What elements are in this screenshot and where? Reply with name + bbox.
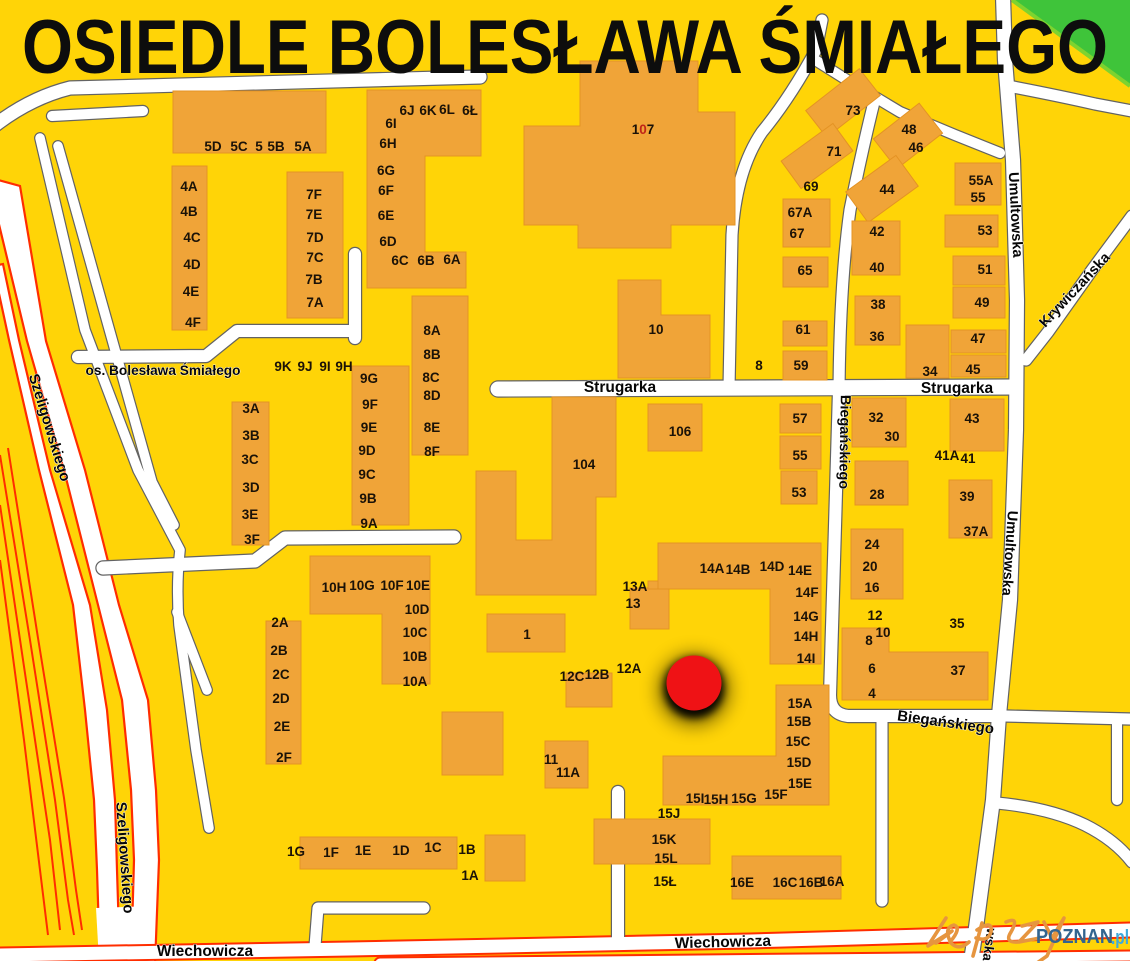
svg-text:16A: 16A — [820, 874, 845, 889]
svg-text:53: 53 — [977, 223, 993, 238]
svg-text:37A: 37A — [964, 524, 989, 539]
svg-text:48: 48 — [901, 122, 917, 137]
svg-text:34: 34 — [922, 364, 938, 379]
svg-text:4C: 4C — [183, 230, 201, 245]
svg-text:2A: 2A — [271, 615, 289, 630]
svg-text:8E: 8E — [424, 420, 441, 435]
svg-text:24: 24 — [864, 537, 880, 552]
svg-text:6J: 6J — [399, 103, 414, 118]
svg-text:5: 5 — [255, 139, 263, 154]
svg-text:55A: 55A — [969, 173, 994, 188]
svg-text:42: 42 — [869, 224, 884, 239]
svg-text:5C: 5C — [230, 139, 248, 154]
svg-text:15D: 15D — [787, 755, 812, 770]
svg-text:14A: 14A — [700, 561, 725, 576]
svg-text:36: 36 — [869, 329, 885, 344]
svg-text:os. Bolesława Śmiałego: os. Bolesława Śmiałego — [86, 363, 241, 378]
svg-text:15Ł: 15Ł — [653, 874, 676, 889]
svg-text:40: 40 — [869, 260, 884, 275]
svg-text:28: 28 — [869, 487, 885, 502]
svg-text:3B: 3B — [242, 428, 260, 443]
svg-text:14E: 14E — [788, 563, 812, 578]
svg-text:2B: 2B — [270, 643, 288, 658]
svg-text:47: 47 — [970, 331, 985, 346]
svg-text:43: 43 — [964, 411, 980, 426]
svg-text:6A: 6A — [443, 252, 461, 267]
svg-text:10: 10 — [648, 322, 663, 337]
svg-text:12C: 12C — [560, 669, 585, 684]
svg-text:45: 45 — [965, 362, 981, 377]
svg-text:10C: 10C — [403, 625, 428, 640]
svg-text:6Ł: 6Ł — [462, 103, 478, 118]
svg-text:9I: 9I — [319, 359, 330, 374]
svg-text:6D: 6D — [379, 234, 397, 249]
svg-text:Biegańskiego: Biegańskiego — [835, 395, 853, 490]
svg-text:55: 55 — [970, 190, 986, 205]
svg-text:106: 106 — [669, 424, 692, 439]
svg-text:14I: 14I — [797, 651, 816, 666]
svg-text:9C: 9C — [358, 467, 376, 482]
svg-text:15C: 15C — [786, 734, 811, 749]
svg-text:5B: 5B — [267, 139, 285, 154]
svg-text:6G: 6G — [377, 163, 395, 178]
svg-text:65: 65 — [797, 263, 813, 278]
svg-text:32: 32 — [868, 410, 883, 425]
svg-text:9K: 9K — [274, 359, 292, 374]
svg-text:9G: 9G — [360, 371, 378, 386]
svg-text:6C: 6C — [391, 253, 409, 268]
svg-text:15E: 15E — [788, 776, 812, 791]
svg-text:53: 53 — [791, 485, 807, 500]
svg-text:55: 55 — [792, 448, 808, 463]
svg-text:1B: 1B — [458, 842, 476, 857]
svg-text:1: 1 — [523, 627, 531, 642]
svg-text:9F: 9F — [362, 397, 378, 412]
svg-text:4E: 4E — [183, 284, 200, 299]
svg-text:16E: 16E — [730, 875, 754, 890]
svg-text:9E: 9E — [361, 420, 378, 435]
svg-text:12A: 12A — [617, 661, 642, 676]
svg-text:39: 39 — [959, 489, 974, 504]
svg-text:41A: 41A — [935, 448, 960, 463]
svg-text:16C: 16C — [773, 875, 798, 890]
svg-text:3A: 3A — [242, 401, 260, 416]
svg-text:38: 38 — [870, 297, 886, 312]
svg-text:7E: 7E — [306, 207, 323, 222]
svg-text:6K: 6K — [419, 103, 437, 118]
svg-text:3D: 3D — [242, 480, 260, 495]
svg-text:10F: 10F — [380, 578, 403, 593]
svg-text:61: 61 — [795, 322, 811, 337]
svg-text:10: 10 — [875, 625, 890, 640]
svg-text:10E: 10E — [406, 578, 430, 593]
svg-text:8: 8 — [865, 633, 873, 648]
svg-text:1G: 1G — [287, 844, 305, 859]
svg-text:OSIEDLE BOLESŁAWA ŚMIAŁEGO: OSIEDLE BOLESŁAWA ŚMIAŁEGO — [22, 5, 1108, 90]
svg-text:8: 8 — [755, 358, 763, 373]
svg-text:44: 44 — [879, 182, 895, 197]
svg-text:8D: 8D — [423, 388, 441, 403]
svg-text:2D: 2D — [272, 691, 290, 706]
svg-text:6I: 6I — [385, 116, 396, 131]
svg-text:10B: 10B — [403, 649, 428, 664]
svg-text:2F: 2F — [276, 750, 292, 765]
svg-text:9J: 9J — [297, 359, 312, 374]
svg-text:14F: 14F — [795, 585, 818, 600]
svg-text:15L: 15L — [654, 851, 677, 866]
svg-text:73: 73 — [845, 103, 861, 118]
svg-text:10H: 10H — [322, 580, 347, 595]
svg-text:7C: 7C — [306, 250, 324, 265]
svg-text:10A: 10A — [403, 674, 428, 689]
svg-text:12: 12 — [867, 608, 882, 623]
svg-text:16: 16 — [864, 580, 880, 595]
svg-text:104: 104 — [573, 457, 596, 472]
svg-text:8F: 8F — [424, 444, 440, 459]
svg-text:3C: 3C — [241, 452, 259, 467]
svg-text:POZNAN: POZNAN — [1036, 926, 1113, 948]
svg-text:4B: 4B — [180, 204, 198, 219]
svg-text:6E: 6E — [378, 208, 395, 223]
svg-text:67: 67 — [789, 226, 804, 241]
svg-text:30: 30 — [884, 429, 899, 444]
svg-text:1F: 1F — [323, 845, 339, 860]
svg-text:11A: 11A — [556, 765, 580, 780]
svg-text:20: 20 — [862, 559, 877, 574]
svg-text:15A: 15A — [788, 696, 813, 711]
svg-text:8B: 8B — [423, 347, 441, 362]
svg-text:37: 37 — [950, 663, 965, 678]
svg-text:1C: 1C — [424, 840, 442, 855]
svg-text:8A: 8A — [423, 323, 441, 338]
svg-text:15J: 15J — [658, 806, 681, 821]
svg-text:6L: 6L — [439, 102, 455, 117]
svg-text:1E: 1E — [355, 843, 372, 858]
svg-text:Wiechowicza: Wiechowicza — [157, 943, 254, 960]
svg-text:3E: 3E — [242, 507, 259, 522]
svg-text:15F: 15F — [764, 787, 787, 802]
svg-text:Strugarka: Strugarka — [584, 379, 657, 396]
svg-text:9A: 9A — [360, 516, 378, 531]
svg-text:6: 6 — [868, 661, 876, 676]
svg-text:5A: 5A — [294, 139, 312, 154]
svg-text:71: 71 — [826, 144, 842, 159]
svg-text:3F: 3F — [244, 532, 260, 547]
svg-text:10D: 10D — [405, 602, 430, 617]
svg-text:.pl: .pl — [1111, 927, 1129, 949]
svg-text:15K: 15K — [652, 832, 677, 847]
svg-text:7A: 7A — [306, 295, 324, 310]
svg-text:67A: 67A — [788, 205, 813, 220]
svg-text:46: 46 — [908, 140, 924, 155]
svg-text:2E: 2E — [274, 719, 291, 734]
svg-text:15B: 15B — [787, 714, 812, 729]
svg-text:13: 13 — [625, 596, 641, 611]
svg-text:6H: 6H — [379, 136, 396, 151]
svg-text:13A: 13A — [623, 579, 648, 594]
svg-text:51: 51 — [977, 262, 993, 277]
svg-text:4D: 4D — [183, 257, 201, 272]
svg-text:9H: 9H — [335, 359, 352, 374]
svg-text:Wiechowicza: Wiechowicza — [675, 933, 772, 953]
svg-text:6F: 6F — [378, 183, 394, 198]
svg-text:7F: 7F — [306, 187, 322, 202]
svg-text:9D: 9D — [358, 443, 376, 458]
svg-text:14B: 14B — [726, 562, 751, 577]
svg-text:14G: 14G — [793, 609, 819, 624]
svg-text:35: 35 — [949, 616, 965, 631]
svg-text:59: 59 — [793, 358, 808, 373]
svg-text:14D: 14D — [760, 559, 785, 574]
svg-text:57: 57 — [792, 411, 807, 426]
svg-text:107: 107 — [632, 122, 655, 137]
svg-text:10G: 10G — [349, 578, 375, 593]
svg-text:6B: 6B — [417, 253, 435, 268]
svg-text:4A: 4A — [180, 179, 198, 194]
svg-text:14H: 14H — [794, 629, 819, 644]
svg-text:1D: 1D — [392, 843, 410, 858]
svg-text:9B: 9B — [359, 491, 377, 506]
svg-text:7D: 7D — [306, 230, 324, 245]
svg-text:41: 41 — [960, 451, 976, 466]
svg-text:49: 49 — [974, 295, 989, 310]
svg-text:15I: 15I — [686, 791, 705, 806]
svg-text:15H: 15H — [704, 792, 729, 807]
svg-text:5D: 5D — [204, 139, 222, 154]
svg-text:Strugarka: Strugarka — [921, 380, 994, 397]
svg-text:15G: 15G — [731, 791, 757, 806]
svg-text:69: 69 — [803, 179, 818, 194]
svg-text:8C: 8C — [422, 370, 440, 385]
svg-text:1A: 1A — [461, 868, 479, 883]
svg-text:2C: 2C — [272, 667, 290, 682]
svg-text:12B: 12B — [585, 667, 610, 682]
svg-text:4: 4 — [868, 686, 876, 701]
svg-text:4F: 4F — [185, 315, 201, 330]
svg-text:7B: 7B — [305, 272, 323, 287]
